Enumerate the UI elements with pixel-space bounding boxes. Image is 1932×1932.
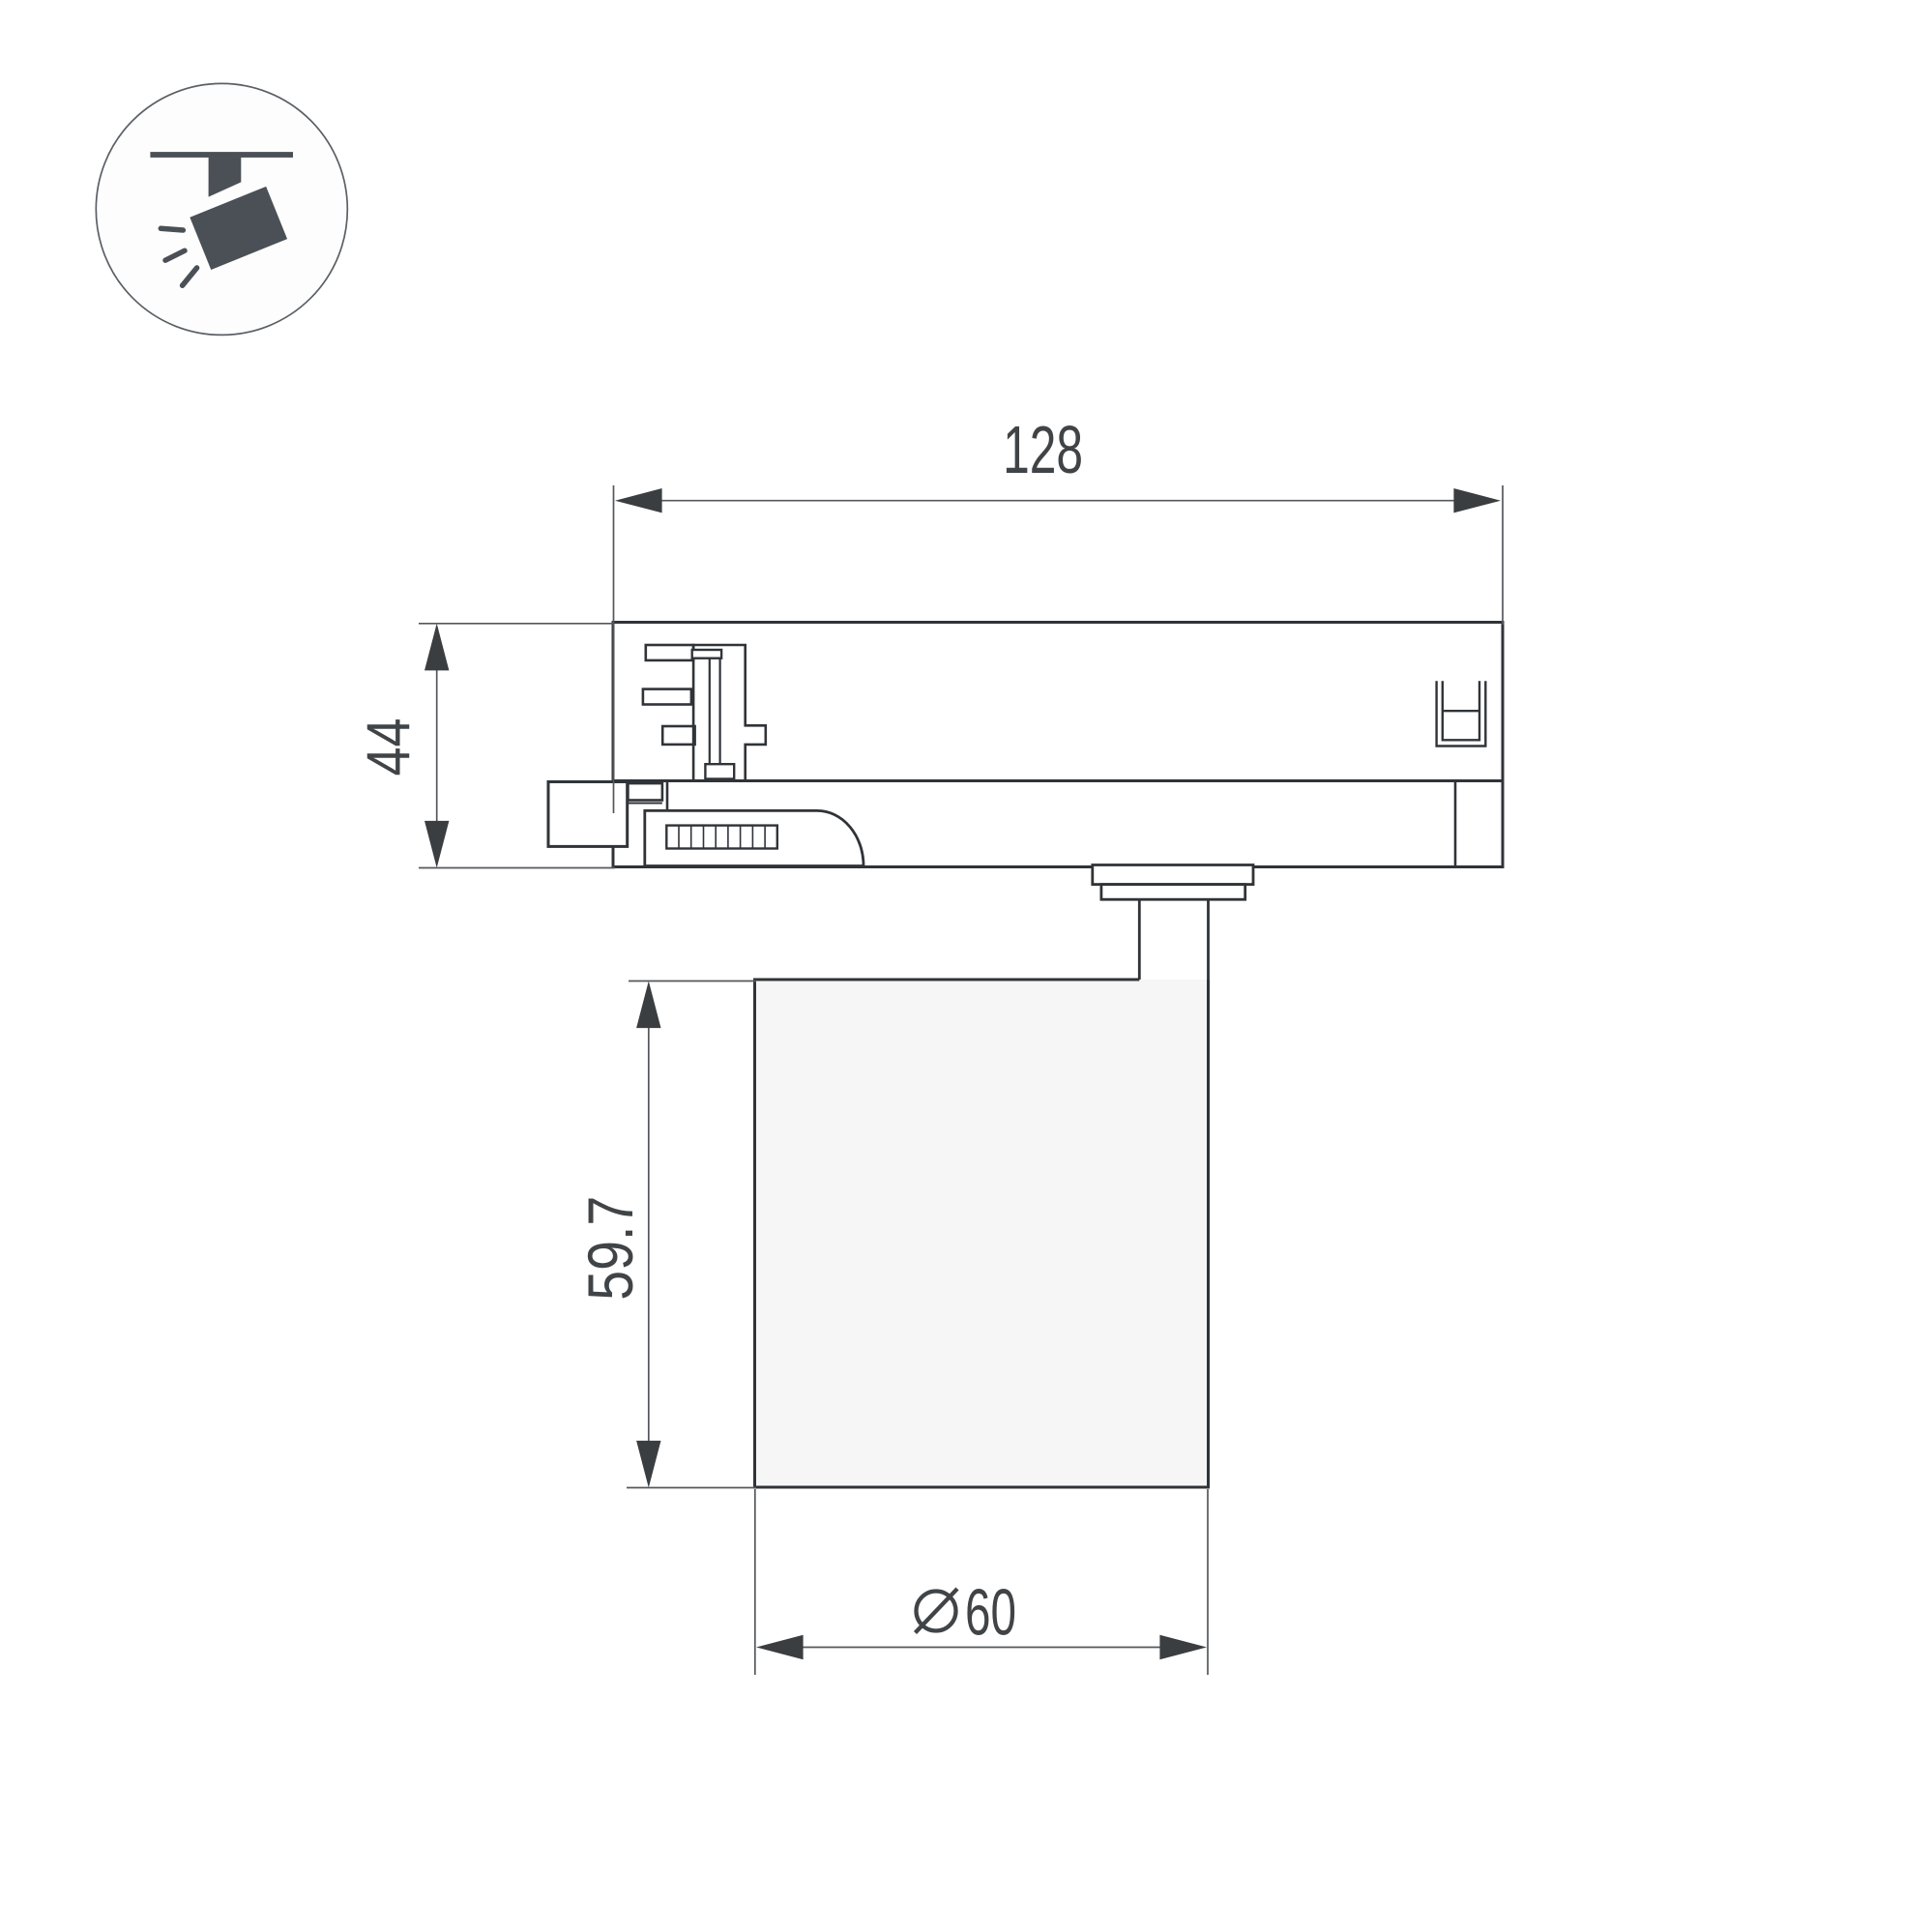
svg-text:128: 128 — [1003, 412, 1083, 487]
svg-text:44: 44 — [356, 718, 424, 776]
svg-text:60: 60 — [965, 1576, 1016, 1650]
svg-text:59.7: 59.7 — [574, 1196, 646, 1301]
